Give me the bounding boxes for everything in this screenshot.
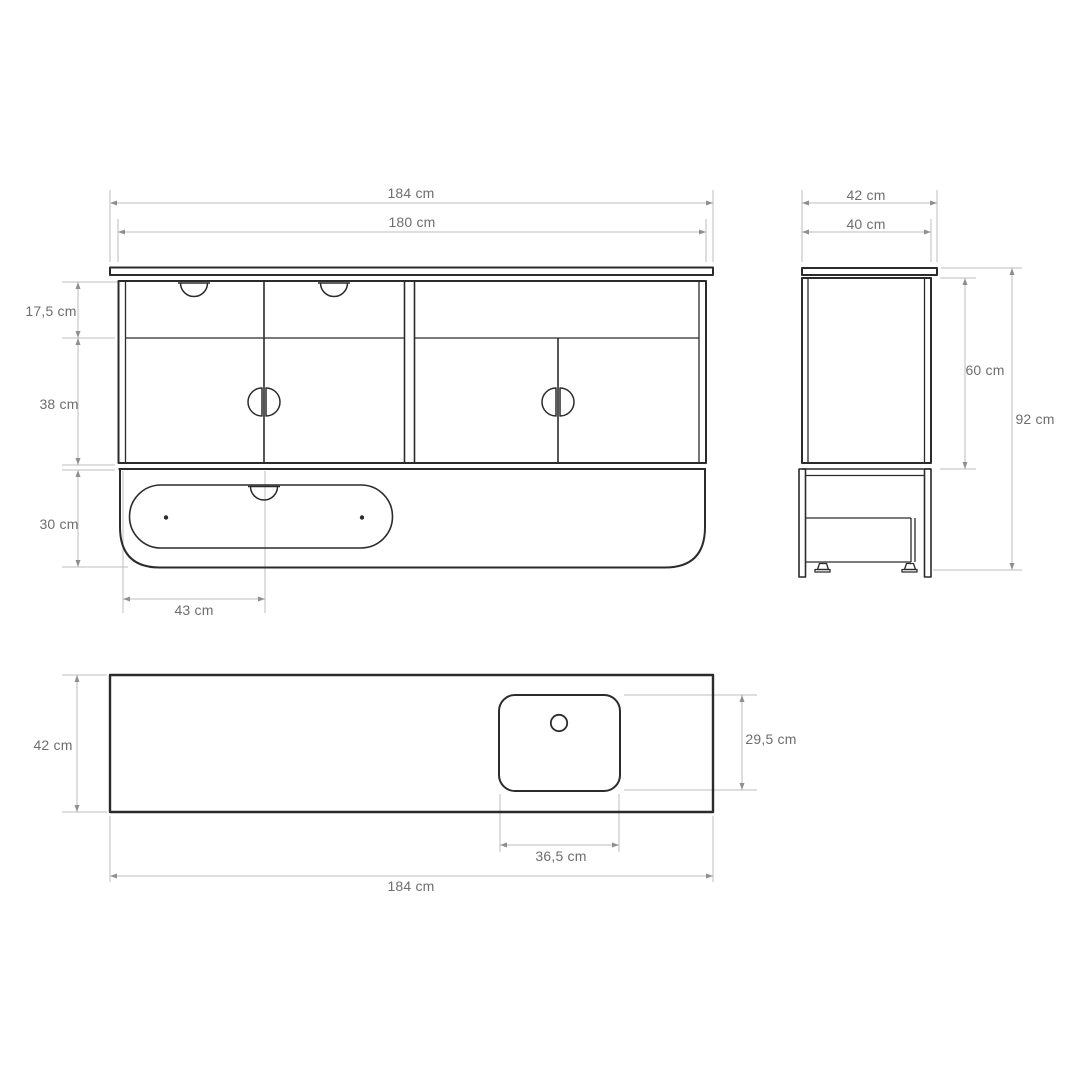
- dim-label-front-drawer-width: 43 cm: [174, 603, 213, 617]
- drawer-front-dot: [164, 515, 168, 519]
- top-view: [110, 675, 713, 812]
- side-feet: [815, 564, 917, 573]
- dimension-lines-group: [62, 190, 1022, 882]
- door-knob-half: [560, 388, 574, 416]
- dim-label-top-sink-depth: 29,5 cm: [745, 732, 796, 746]
- door-knob-half: [266, 388, 280, 416]
- dim-label-top-sink-width: 36,5 cm: [535, 849, 586, 863]
- dim-label-top-width-total: 184 cm: [387, 879, 434, 893]
- drawer-handle-notch: [318, 283, 350, 297]
- side-view: [799, 268, 937, 577]
- drawing-svg: [0, 0, 1080, 1080]
- front-carcass: [119, 281, 707, 463]
- side-dimension-lines: [802, 203, 1012, 570]
- dim-label-front-width-body: 180 cm: [388, 215, 435, 229]
- front-extension-lines: [62, 190, 713, 613]
- cabinet-drawing-group: [110, 268, 937, 813]
- side-countertop: [802, 268, 937, 275]
- top-countertop-outline: [110, 675, 713, 812]
- base-drawer-front: [130, 485, 393, 548]
- side-extension-lines: [802, 190, 1022, 570]
- front-handles: [178, 283, 574, 416]
- door-knob-half: [248, 388, 262, 416]
- dim-label-side-total-height: 92 cm: [1015, 412, 1054, 426]
- side-leg-back: [799, 469, 806, 577]
- adjustable-foot: [905, 564, 916, 570]
- front-dividers: [264, 281, 558, 463]
- door-knob-half: [542, 388, 556, 416]
- sink-cutout: [499, 695, 620, 791]
- side-panel-lines: [808, 278, 925, 463]
- front-countertop: [110, 268, 713, 276]
- faucet-hole: [551, 715, 567, 731]
- foot-base: [902, 570, 917, 573]
- drawer-front-dot: [360, 515, 364, 519]
- dim-label-side-depth-total: 42 cm: [846, 188, 885, 202]
- side-carcass: [802, 278, 931, 463]
- side-base-box: [806, 476, 925, 563]
- drawer-handle-notch: [178, 283, 210, 297]
- technical-drawing-canvas: 184 cm 180 cm 17,5 cm 38 cm 30 cm 43 cm …: [0, 0, 1080, 1080]
- adjustable-foot: [818, 564, 829, 570]
- front-panel-lines: [126, 281, 700, 463]
- dim-label-side-depth-body: 40 cm: [846, 217, 885, 231]
- side-leg-front: [925, 469, 932, 577]
- dim-label-front-base-height: 30 cm: [39, 517, 78, 531]
- front-view: [110, 268, 713, 568]
- dim-label-side-carcass-height: 60 cm: [965, 363, 1004, 377]
- dim-label-front-door-height: 38 cm: [39, 397, 78, 411]
- dim-label-front-width-total: 184 cm: [387, 186, 434, 200]
- base-drawer-handle-notch: [248, 487, 280, 501]
- top-extension-lines: [62, 675, 757, 882]
- dim-label-top-depth: 42 cm: [33, 738, 72, 752]
- front-dimension-lines: [78, 203, 713, 599]
- foot-base: [815, 570, 830, 573]
- front-base-panel: [120, 469, 705, 568]
- dim-label-front-drawer-height: 17,5 cm: [25, 304, 76, 318]
- top-dimension-lines: [77, 675, 742, 876]
